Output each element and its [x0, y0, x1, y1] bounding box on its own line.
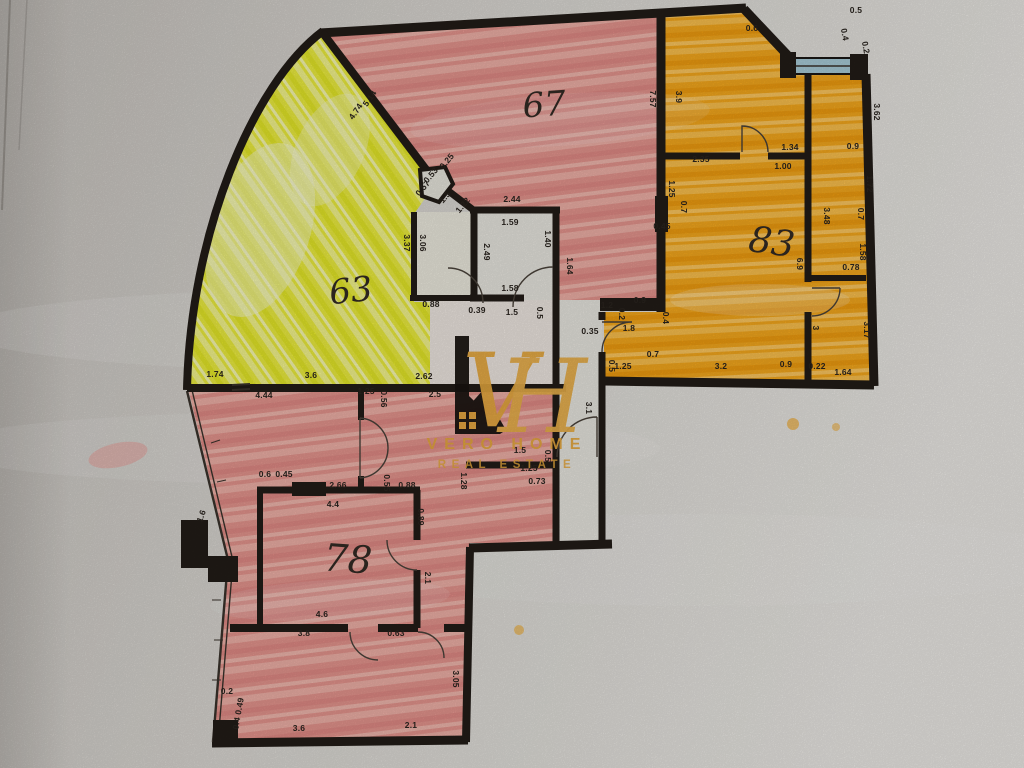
- grain-overlay: [0, 0, 1024, 768]
- floor-plan-photo: 5.144.740.250.530.571.51.222.441.591.401…: [0, 0, 1024, 768]
